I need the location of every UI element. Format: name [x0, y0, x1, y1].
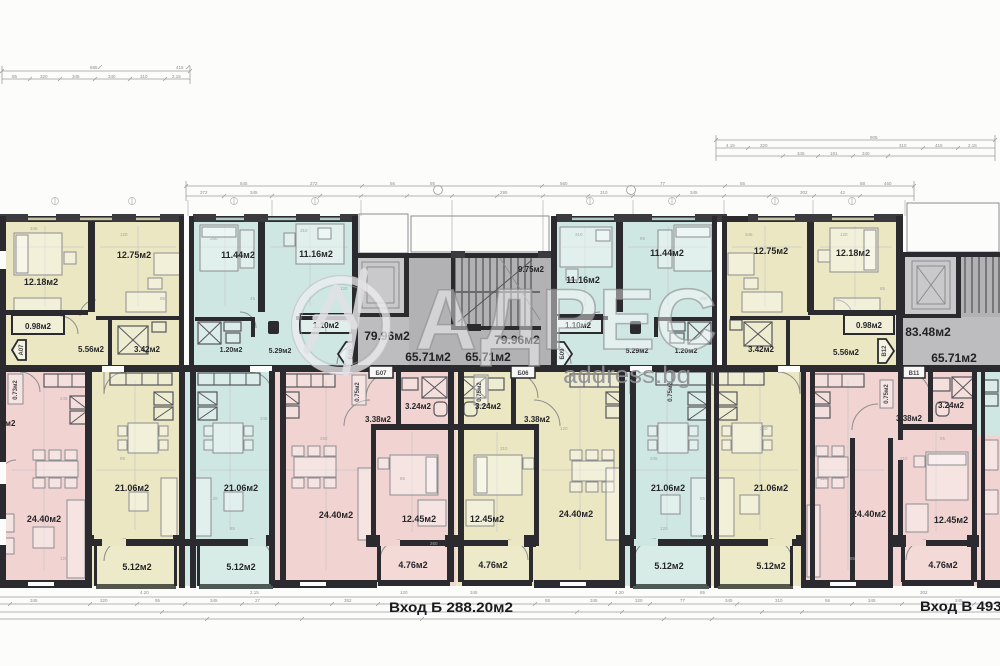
svg-text:85: 85	[700, 590, 706, 595]
svg-text:3.24м2: 3.24м2	[475, 402, 501, 411]
svg-text:95: 95	[155, 598, 161, 603]
svg-text:11.44м2: 11.44м2	[650, 248, 684, 258]
svg-text:Вход Б 288.20м2: Вход Б 288.20м2	[389, 600, 513, 615]
svg-text:85: 85	[230, 526, 236, 531]
svg-text:245: 245	[60, 396, 68, 401]
svg-text:3.38м2: 3.38м2	[896, 414, 922, 423]
svg-text:12.75м2: 12.75м2	[117, 250, 151, 260]
svg-text:310: 310	[900, 456, 908, 461]
svg-text:88: 88	[545, 598, 551, 603]
svg-text:77: 77	[660, 181, 666, 186]
svg-text:120: 120	[400, 590, 408, 595]
svg-text:310: 310	[500, 446, 508, 451]
svg-text:address.bg: address.bg	[563, 362, 691, 389]
svg-text:345: 345	[470, 590, 478, 595]
svg-text:21.06м2: 21.06м2	[115, 483, 149, 493]
svg-text:120: 120	[840, 232, 848, 237]
svg-text:77: 77	[680, 598, 686, 603]
svg-text:310: 310	[775, 598, 783, 603]
svg-text:5.12м2: 5.12м2	[756, 561, 785, 571]
svg-text:24.40м2: 24.40м2	[559, 509, 593, 519]
svg-text:3.38м2: 3.38м2	[365, 415, 391, 424]
svg-text:685: 685	[90, 65, 98, 70]
svg-text:310: 310	[600, 190, 608, 195]
svg-text:260: 260	[320, 436, 328, 441]
svg-text:3.42м2: 3.42м2	[748, 345, 774, 354]
svg-text:260: 260	[760, 426, 768, 431]
svg-text:85: 85	[880, 286, 886, 291]
svg-text:В11: В11	[909, 371, 920, 377]
svg-text:120: 120	[60, 556, 68, 561]
svg-text:А07: А07	[19, 344, 25, 356]
svg-text:345: 345	[745, 232, 753, 237]
svg-text:2.15: 2.15	[250, 590, 259, 595]
svg-text:0.73м2: 0.73м2	[13, 380, 19, 400]
svg-text:88: 88	[860, 181, 866, 186]
svg-text:12.45м2: 12.45м2	[470, 514, 504, 524]
svg-text:42: 42	[840, 190, 846, 195]
svg-text:4.20: 4.20	[615, 590, 624, 595]
svg-text:21.06м2: 21.06м2	[651, 483, 685, 493]
svg-text:8м2: 8м2	[1, 419, 16, 428]
svg-text:24.40м2: 24.40м2	[852, 509, 886, 519]
svg-text:24.40м2: 24.40м2	[319, 510, 353, 520]
svg-text:120: 120	[210, 496, 218, 501]
svg-text:Б06: Б06	[518, 371, 530, 377]
svg-text:295: 295	[500, 190, 508, 195]
svg-text:320: 320	[635, 598, 643, 603]
svg-text:310: 310	[899, 143, 907, 148]
svg-text:345: 345	[797, 151, 805, 156]
svg-text:85: 85	[640, 236, 646, 241]
svg-text:272: 272	[310, 181, 318, 186]
svg-text:345: 345	[72, 74, 80, 79]
svg-text:5.12м2: 5.12м2	[226, 562, 255, 572]
svg-text:12.45м2: 12.45м2	[402, 514, 436, 524]
svg-text:Б07: Б07	[376, 371, 388, 377]
svg-text:415: 415	[176, 65, 184, 70]
svg-text:3.24м2: 3.24м2	[405, 402, 431, 411]
svg-text:0.98м2: 0.98м2	[25, 322, 51, 331]
svg-text:352: 352	[344, 598, 352, 603]
svg-text:21.06м2: 21.06м2	[754, 483, 788, 493]
svg-text:95: 95	[430, 181, 436, 186]
svg-text:345: 345	[590, 598, 598, 603]
svg-text:5.29м2: 5.29м2	[269, 348, 292, 355]
svg-text:0.75м2: 0.75м2	[884, 384, 890, 404]
svg-text:12.18м2: 12.18м2	[24, 277, 58, 287]
svg-text:310: 310	[300, 228, 308, 233]
svg-text:5.56м2: 5.56м2	[833, 348, 859, 357]
svg-text:310: 310	[575, 232, 583, 237]
svg-text:345: 345	[650, 456, 658, 461]
svg-text:12.75м2: 12.75м2	[754, 246, 788, 256]
svg-text:85: 85	[400, 476, 406, 481]
svg-text:3.42м2: 3.42м2	[134, 345, 160, 354]
svg-text:345: 345	[260, 416, 268, 421]
svg-text:5.12м2: 5.12м2	[654, 561, 683, 571]
svg-text:В12: В12	[882, 345, 888, 357]
svg-text:56: 56	[825, 598, 831, 603]
svg-text:1.20м2: 1.20м2	[220, 347, 243, 354]
svg-text:260: 260	[210, 236, 218, 241]
svg-text:АДРЕС: АДРЕС	[415, 272, 717, 368]
svg-text:260: 260	[430, 541, 438, 546]
svg-text:345: 345	[690, 190, 698, 195]
svg-text:320: 320	[760, 143, 768, 148]
svg-text:320: 320	[100, 598, 108, 603]
svg-text:Вход В 493.70м2: Вход В 493.70м2	[920, 599, 1000, 614]
svg-text:56: 56	[740, 181, 746, 186]
svg-text:340: 340	[862, 151, 870, 156]
svg-text:320: 320	[40, 74, 48, 79]
svg-text:345: 345	[868, 598, 876, 603]
svg-text:2.15: 2.15	[968, 143, 977, 148]
svg-text:302: 302	[800, 190, 808, 195]
svg-text:12.45м2: 12.45м2	[934, 515, 968, 525]
svg-text:5.12м2: 5.12м2	[122, 562, 151, 572]
svg-text:12.18м2: 12.18м2	[836, 248, 870, 258]
svg-text:905: 905	[870, 135, 878, 140]
svg-text:845: 845	[240, 181, 248, 186]
svg-text:302: 302	[920, 590, 928, 595]
svg-text:120: 120	[660, 526, 668, 531]
svg-text:345: 345	[725, 598, 733, 603]
svg-text:85: 85	[120, 456, 126, 461]
svg-text:310: 310	[140, 74, 148, 79]
svg-text:24.40м2: 24.40м2	[27, 514, 61, 524]
svg-text:27: 27	[255, 598, 261, 603]
svg-text:21.06м2: 21.06м2	[224, 483, 258, 493]
svg-text:85: 85	[850, 556, 856, 561]
svg-text:120: 120	[560, 426, 568, 431]
svg-text:345: 345	[30, 226, 38, 231]
svg-text:181: 181	[830, 151, 838, 156]
svg-text:83.48м2: 83.48м2	[905, 325, 951, 339]
svg-text:415: 415	[935, 143, 943, 148]
svg-text:4.15: 4.15	[726, 143, 735, 148]
svg-text:4.76м2: 4.76м2	[928, 560, 957, 570]
svg-text:120: 120	[120, 232, 128, 237]
svg-text:85: 85	[12, 74, 18, 79]
svg-text:345: 345	[210, 598, 218, 603]
svg-text:3.24м2: 3.24м2	[938, 401, 964, 410]
svg-text:0.75м2: 0.75м2	[355, 382, 361, 402]
svg-text:56: 56	[390, 181, 396, 186]
svg-text:560: 560	[560, 181, 568, 186]
svg-text:4.20: 4.20	[140, 590, 149, 595]
svg-text:85: 85	[160, 296, 166, 301]
svg-text:3.38м2: 3.38м2	[524, 415, 550, 424]
svg-text:85: 85	[700, 496, 706, 501]
svg-text:2.15: 2.15	[172, 74, 181, 79]
svg-text:85: 85	[940, 436, 946, 441]
svg-text:4.76м2: 4.76м2	[398, 560, 427, 570]
svg-text:0.98м2: 0.98м2	[856, 321, 882, 330]
svg-text:372: 372	[200, 190, 208, 195]
svg-text:0.75м2: 0.75м2	[477, 382, 483, 402]
svg-text:345: 345	[30, 598, 38, 603]
svg-text:340: 340	[108, 74, 116, 79]
svg-text:460: 460	[884, 181, 892, 186]
svg-text:11.16м2: 11.16м2	[299, 249, 333, 259]
svg-text:120: 120	[820, 476, 828, 481]
svg-text:45: 45	[250, 296, 256, 301]
svg-text:345: 345	[250, 190, 258, 195]
svg-text:4.76м2: 4.76м2	[478, 560, 507, 570]
svg-text:65.71м2: 65.71м2	[931, 351, 977, 365]
svg-text:5.56м2: 5.56м2	[78, 345, 104, 354]
svg-text:11.44м2: 11.44м2	[221, 250, 255, 260]
